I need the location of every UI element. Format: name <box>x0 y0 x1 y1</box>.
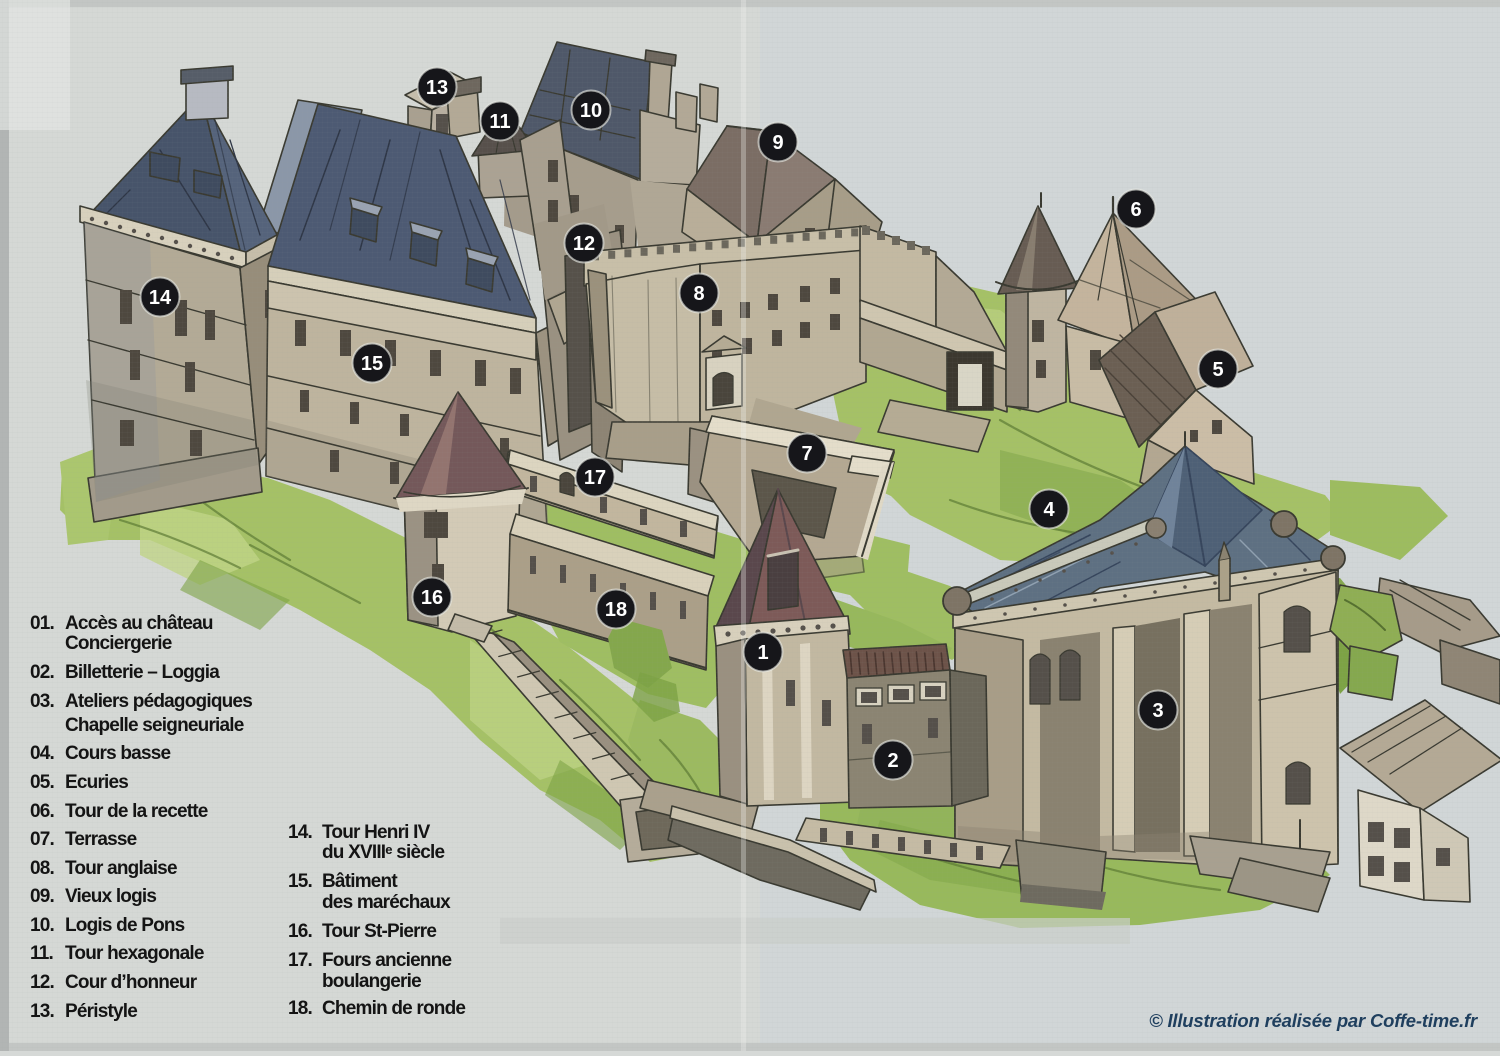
svg-text:13: 13 <box>426 77 448 99</box>
svg-text:3: 3 <box>1152 700 1163 722</box>
svg-text:15: 15 <box>361 353 383 375</box>
svg-text:12: 12 <box>573 233 595 255</box>
svg-text:17: 17 <box>584 467 606 489</box>
svg-text:7: 7 <box>801 443 812 465</box>
svg-text:4: 4 <box>1043 499 1055 521</box>
svg-text:18: 18 <box>605 599 627 621</box>
svg-text:9: 9 <box>772 132 783 154</box>
svg-text:5: 5 <box>1212 359 1223 381</box>
svg-text:1: 1 <box>757 642 768 664</box>
svg-text:16: 16 <box>421 587 443 609</box>
svg-text:10: 10 <box>580 100 602 122</box>
svg-text:8: 8 <box>693 283 704 305</box>
svg-text:14: 14 <box>149 287 172 309</box>
svg-text:6: 6 <box>1130 199 1141 221</box>
svg-text:11: 11 <box>489 111 510 133</box>
svg-text:2: 2 <box>887 750 898 772</box>
